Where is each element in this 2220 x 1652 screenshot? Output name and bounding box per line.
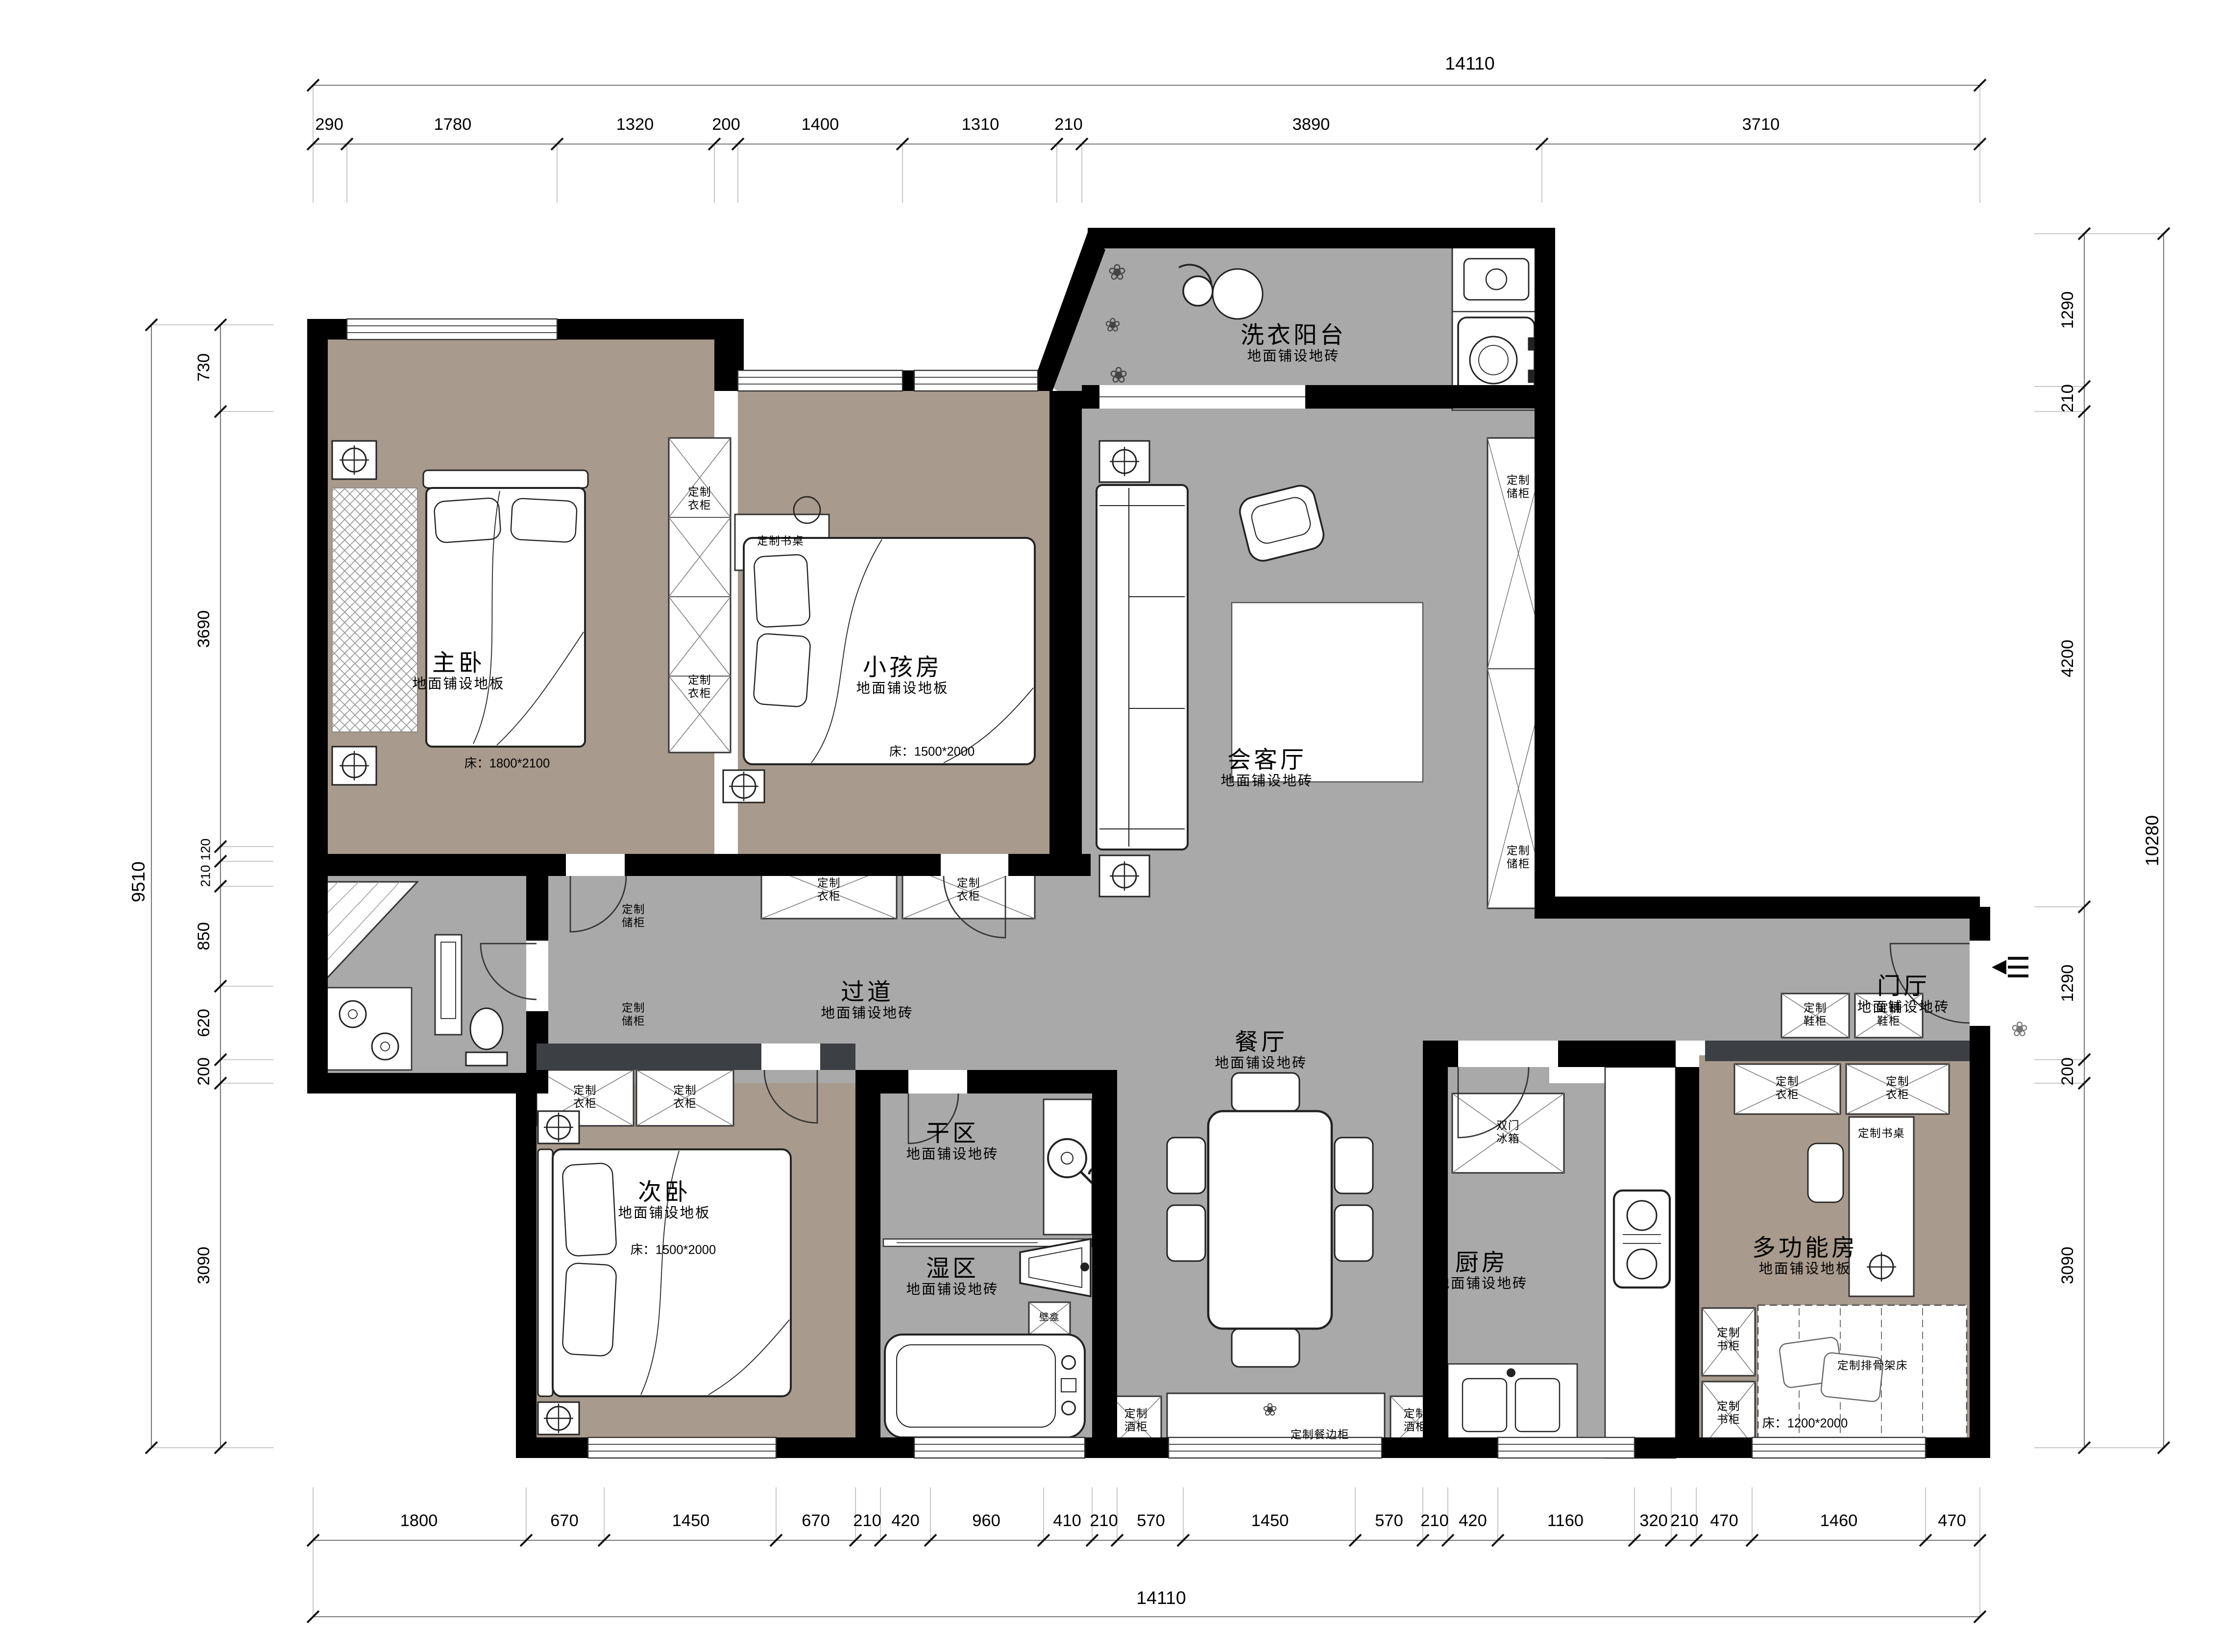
room-label-second: 次卧地面铺设地板 (618, 1181, 710, 1224)
dim-bot-5: 420 (891, 1513, 920, 1532)
plant-icon: ❀ (1109, 364, 1128, 389)
dim-bot-total: 14110 (1136, 1588, 1186, 1610)
label-wardrobe-1: 定制衣柜 (687, 487, 712, 512)
dim-top-total: 14110 (1445, 53, 1495, 76)
dim-top-7: 3890 (1293, 117, 1330, 136)
entry-arrow-icon: ◀ (1992, 956, 2006, 978)
dim-bot-11: 570 (1375, 1513, 1403, 1532)
dim-bot-16: 210 (1670, 1513, 1699, 1532)
room-label-foyer: 门厅地面铺设地砖 (1857, 975, 1950, 1018)
label-shoe-1: 定制鞋柜 (1803, 1003, 1828, 1028)
label-storage-3: 定制储柜 (1506, 475, 1531, 501)
label-wardrobe-7: 定制衣柜 (1775, 1076, 1800, 1102)
floor-plan-sheet: 14110 290 1780 1320 200 1400 1310 210 38… (0, 0, 2220, 1652)
dim-top-4: 1400 (802, 117, 839, 136)
dim-right-total: 10280 (2142, 815, 2165, 866)
bed-note-master: 床：1800*2100 (464, 757, 550, 771)
second-bed (538, 1111, 791, 1434)
dim-bot-13: 420 (1459, 1513, 1487, 1532)
dim-right-2: 4200 (2060, 640, 2079, 678)
plant-icon: ❀ (1108, 261, 1126, 286)
dim-top-0: 290 (315, 117, 343, 136)
dim-top-3: 200 (712, 117, 740, 136)
room-label-hallway: 过道地面铺设地砖 (821, 981, 913, 1024)
master-rug (332, 488, 417, 732)
dim-right-1: 210 (2060, 384, 2079, 413)
bed-note-kids: 床：1500*2000 (889, 745, 975, 759)
plant-icon: ❀ (1105, 316, 1121, 338)
label-storage-4: 定制储柜 (1506, 846, 1531, 871)
dim-bot-10: 1450 (1251, 1513, 1289, 1532)
master-bed (423, 470, 588, 747)
dim-top-2: 1320 (616, 117, 654, 136)
dim-bot-4: 210 (853, 1513, 881, 1532)
dim-left-6: 200 (196, 1057, 216, 1086)
dim-top-8: 3710 (1742, 117, 1780, 136)
label-shoe-2: 定制鞋柜 (1877, 1003, 1902, 1028)
label-fridge: 双门冰箱 (1496, 1120, 1521, 1146)
label-desk-multi: 定制书桌 (1858, 1128, 1905, 1141)
room-label-dry: 干区地面铺设地砖 (906, 1122, 999, 1165)
dim-left-total: 9510 (128, 861, 151, 902)
label-wine-1: 定制酒柜 (1124, 1409, 1149, 1434)
dim-bot-12: 210 (1420, 1513, 1449, 1532)
dim-bot-18: 1460 (1820, 1513, 1858, 1532)
dim-bot-0: 1800 (400, 1513, 438, 1532)
room-label-kids: 小孩房地面铺设地板 (856, 656, 949, 699)
label-storage-2: 定制储柜 (621, 1003, 646, 1028)
dim-left-4: 850 (196, 922, 216, 950)
dim-right-0: 1290 (2060, 292, 2079, 329)
dim-left-1: 3690 (196, 610, 216, 648)
room-label-dining: 餐厅地面铺设地砖 (1215, 1031, 1307, 1074)
dim-bot-2: 1450 (672, 1513, 710, 1532)
label-wardrobe-8: 定制衣柜 (1885, 1076, 1910, 1102)
dim-bot-15: 320 (1639, 1513, 1668, 1532)
room-label-kitchen: 厨房地面铺设地砖 (1435, 1251, 1528, 1294)
dim-right-4: 200 (2060, 1057, 2079, 1086)
dim-left-0: 730 (196, 353, 216, 382)
label-desk-kids: 定制书桌 (757, 536, 804, 549)
label-wardrobe-5: 定制衣柜 (573, 1085, 598, 1111)
dim-right-3: 1290 (2060, 965, 2079, 1002)
room-label-laundry: 洗衣阳台地面铺设地砖 (1241, 324, 1346, 367)
dim-right-5: 3090 (2060, 1247, 2079, 1285)
floor-plan-drawing (0, 0, 2220, 1652)
label-wardrobe-4: 定制衣柜 (956, 878, 981, 903)
label-sideboard: 定制餐边柜 (1291, 1430, 1349, 1442)
dim-left-5: 620 (196, 1009, 216, 1037)
dim-bot-3: 670 (802, 1513, 830, 1532)
dim-left-2: 120 (198, 838, 213, 860)
plant-icon: ❀ (2011, 1017, 2028, 1041)
label-wardrobe-2: 定制衣柜 (687, 675, 712, 701)
bed-note-second: 床：1500*2000 (631, 1243, 716, 1258)
label-slat-bed: 定制排骨架床 (1837, 1360, 1908, 1373)
dim-bot-19: 470 (1938, 1513, 1966, 1532)
dim-bot-6: 960 (972, 1513, 1000, 1532)
dim-bot-7: 410 (1053, 1513, 1081, 1532)
dim-left-7: 3090 (196, 1247, 216, 1285)
dim-left-3: 210 (198, 865, 213, 887)
dim-top-6: 210 (1054, 117, 1083, 136)
room-label-wet: 湿区地面铺设地砖 (906, 1257, 999, 1300)
bed-note-multi: 床：1200*2000 (1762, 1417, 1848, 1431)
label-wardrobe-6: 定制衣柜 (673, 1085, 698, 1111)
bathtub (885, 1335, 1085, 1437)
dim-top-1: 1780 (434, 117, 472, 136)
room-label-master: 主卧地面铺设地板 (412, 652, 505, 695)
label-storage-1: 定制储柜 (621, 904, 646, 930)
label-bookcase-2: 定制书柜 (1716, 1401, 1741, 1427)
label-wardrobe-3: 定制衣柜 (817, 878, 842, 903)
room-label-living: 会客厅地面铺设地砖 (1220, 749, 1313, 792)
dim-bot-14: 1160 (1547, 1513, 1584, 1532)
living-sofa (1097, 441, 1188, 897)
dim-bot-9: 570 (1137, 1513, 1165, 1532)
label-bookcase-1: 定制书柜 (1716, 1328, 1741, 1353)
label-niche: 壁龛 (1039, 1313, 1060, 1324)
dim-bot-8: 210 (1090, 1513, 1118, 1532)
dim-bot-17: 470 (1710, 1513, 1738, 1532)
kids-nightstand (723, 770, 764, 802)
kids-bed (744, 538, 1035, 764)
room-label-multi: 多功能房地面铺设地板 (1752, 1237, 1858, 1280)
plant-icon: ❀ (1263, 1401, 1277, 1421)
label-wine-2: 定制酒柜 (1403, 1409, 1428, 1434)
dim-top-5: 1310 (962, 117, 1000, 136)
dim-bot-1: 670 (550, 1513, 579, 1532)
